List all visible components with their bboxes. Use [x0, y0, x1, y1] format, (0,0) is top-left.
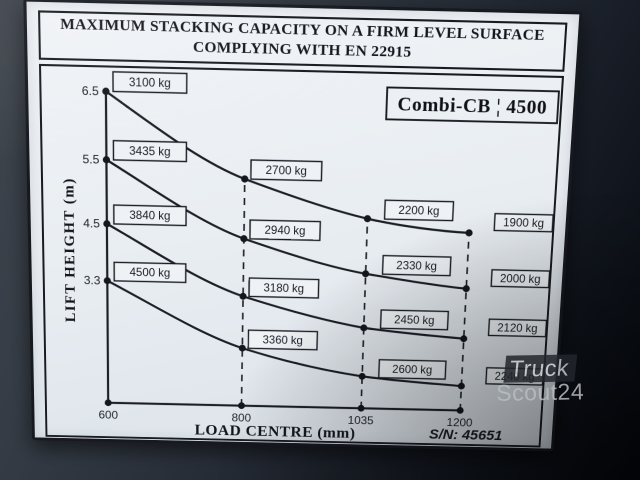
capacity-label: 2940 kg [264, 224, 305, 238]
capacity-label: 3180 kg [263, 282, 304, 295]
x-axis-label: LOAD CENTRE (mm) [195, 422, 356, 441]
chart-frame: Combi-CB ¦ 4500 [39, 64, 564, 448]
x-axis [108, 403, 460, 411]
y-tick-4.5: 4.5 [83, 216, 100, 230]
capacity-label: 2330 kg [396, 259, 437, 272]
capacity-label: 2600 kg [392, 363, 432, 376]
guide-800mm [241, 179, 244, 406]
capacity-label: 3360 kg [263, 334, 303, 347]
y-axis-ticks: 6.5 5.5 4.5 3.3 [82, 84, 101, 288]
truckscout24-watermark: Truck Scout24 [505, 354, 585, 404]
y-tick-5.5: 5.5 [82, 152, 99, 166]
capacity-label: 3100 kg [129, 76, 171, 90]
guide-1035mm [361, 219, 367, 409]
capacity-label: 2450 kg [394, 314, 435, 327]
x-tick-600: 600 [99, 408, 119, 421]
capacity-label: 2120 kg [497, 322, 538, 335]
capacity-label: 2700 kg [266, 164, 308, 178]
y-tick-3.3: 3.3 [84, 273, 101, 287]
capacity-label: 3840 kg [129, 209, 170, 223]
capacity-label: 2200 kg [398, 204, 440, 218]
capacity-label: 3435 kg [129, 145, 170, 159]
capacity-label: 4500 kg [130, 266, 171, 279]
capacity-label: 2000 kg [500, 273, 541, 286]
model-label: Combi-CB ¦ 4500 [397, 94, 548, 119]
capacity-labels-800mm: 2700 kg 2940 kg 3180 kg 3360 kg [248, 160, 322, 350]
capacity-chart: Combi-CB ¦ 4500 [41, 66, 566, 446]
y-axis-label: LIFT HEIGHT (m) [60, 177, 79, 322]
watermark-scout24-text: Scout24 [496, 379, 584, 405]
model-badge: Combi-CB ¦ 4500 [386, 87, 559, 123]
y-tick-6.5: 6.5 [82, 84, 99, 99]
photo-background: MAXIMUM STACKING CAPACITY ON A FIRM LEVE… [0, 0, 640, 480]
capacity-label: 1900 kg [503, 216, 545, 230]
watermark-truck-badge: Truck [503, 354, 577, 382]
serial-number: S/N: 45651 [429, 427, 503, 444]
plate-title: MAXIMUM STACKING CAPACITY ON A FIRM LEVE… [38, 10, 567, 71]
y-axis [106, 91, 108, 402]
